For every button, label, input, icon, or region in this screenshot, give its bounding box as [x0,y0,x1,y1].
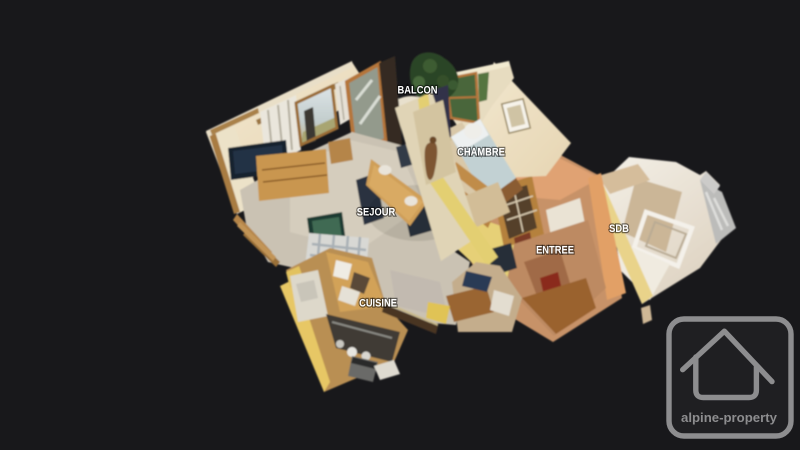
svg-text:ENTREE: ENTREE [536,245,574,257]
svg-text:alpine-property: alpine-property [681,410,778,425]
svg-text:SEJOUR: SEJOUR [357,207,396,219]
svg-text:CUISINE: CUISINE [359,298,397,310]
svg-text:SDB: SDB [609,223,629,235]
svg-text:CHAMBRE: CHAMBRE [457,147,505,159]
svg-text:BALCON: BALCON [398,85,438,97]
